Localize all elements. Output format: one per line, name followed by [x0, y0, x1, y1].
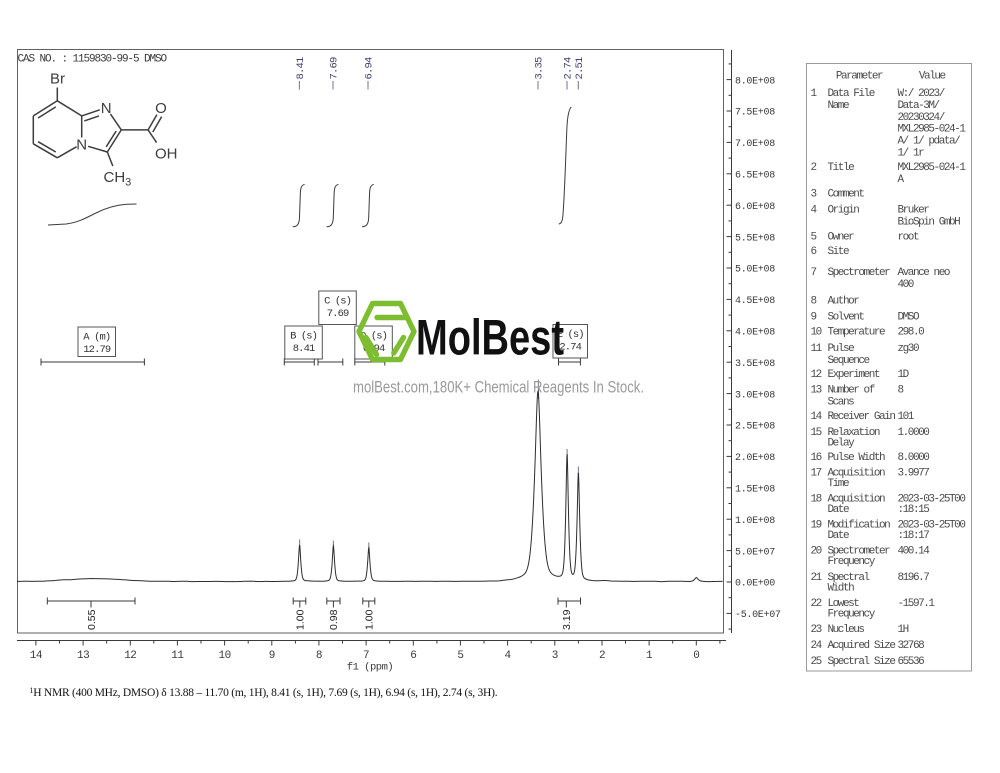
svg-text:3.5E+08: 3.5E+08 [735, 359, 775, 370]
svg-text::18:17: :18:17 [898, 530, 930, 542]
svg-text:MXL2985-024-1: MXL2985-024-1 [898, 162, 967, 174]
svg-text:Acquired Size: Acquired Size [828, 640, 896, 652]
svg-text:5.0E+07: 5.0E+07 [735, 547, 775, 558]
svg-text:zg30: zg30 [898, 343, 919, 355]
svg-text:BioSpin GmbH: BioSpin GmbH [898, 216, 961, 228]
svg-text:22: 22 [811, 598, 822, 610]
svg-text:A (m): A (m) [83, 332, 110, 344]
svg-text:8.0000: 8.0000 [898, 452, 930, 464]
svg-text:Comment: Comment [828, 189, 865, 201]
svg-text:OH: OH [155, 146, 178, 163]
svg-text:3.9977: 3.9977 [898, 467, 930, 479]
svg-text:7.0E+08: 7.0E+08 [735, 139, 775, 150]
svg-text:Avance neo: Avance neo [898, 267, 950, 279]
svg-text:4: 4 [811, 205, 818, 217]
svg-text:1D: 1D [898, 369, 910, 381]
svg-text:8: 8 [316, 650, 322, 662]
svg-text:Nucleus: Nucleus [828, 624, 865, 636]
svg-text:1.00: 1.00 [295, 609, 307, 630]
svg-text:9: 9 [811, 312, 817, 324]
svg-text:12.79: 12.79 [83, 344, 111, 356]
svg-text:4.5E+08: 4.5E+08 [735, 296, 775, 307]
svg-text:17: 17 [811, 467, 822, 479]
svg-text:3.19: 3.19 [561, 609, 573, 630]
svg-text:Solvent: Solvent [828, 312, 865, 324]
svg-text:18: 18 [811, 493, 822, 505]
svg-text:12: 12 [811, 369, 822, 381]
svg-text:16: 16 [811, 452, 822, 464]
svg-text:11: 11 [811, 343, 823, 355]
svg-text:11: 11 [171, 650, 184, 662]
svg-text:A: A [898, 174, 905, 186]
svg-text:10: 10 [218, 650, 230, 662]
svg-text:101: 101 [898, 411, 915, 423]
svg-text:8.41: 8.41 [295, 57, 307, 80]
svg-text:MXL2985-024-1: MXL2985-024-1 [898, 124, 967, 136]
svg-text:Pulse Width: Pulse Width [828, 452, 886, 464]
svg-text:N: N [76, 136, 87, 153]
svg-text:400.14: 400.14 [898, 545, 931, 557]
svg-text:8.0E+08: 8.0E+08 [735, 76, 775, 87]
svg-text:Width: Width [828, 583, 855, 595]
svg-text:5: 5 [457, 650, 463, 662]
svg-text:0: 0 [693, 650, 699, 662]
svg-text:Data File: Data File [828, 88, 875, 100]
svg-text:Title: Title [828, 162, 855, 174]
svg-text:1.5E+08: 1.5E+08 [735, 485, 775, 496]
svg-text:A/ 1/ pdata/: A/ 1/ pdata/ [898, 136, 961, 148]
svg-text:C (s): C (s) [324, 296, 351, 308]
svg-text:Sequence: Sequence [828, 355, 870, 367]
svg-text:2.0E+08: 2.0E+08 [735, 453, 775, 464]
svg-text:2.51: 2.51 [574, 57, 586, 80]
svg-text:7: 7 [811, 267, 817, 279]
svg-text:Receiver Gain: Receiver Gain [828, 411, 896, 423]
svg-text:5.0E+08: 5.0E+08 [735, 265, 775, 276]
svg-text:20230324/: 20230324/ [898, 112, 945, 124]
svg-text:Scans: Scans [828, 396, 855, 408]
svg-text:1H: 1H [898, 624, 909, 636]
svg-text:CAS NO. : 1159830-99-5 DMSO: CAS NO. : 1159830-99-5 DMSO [18, 54, 168, 66]
svg-text:Spectral Size: Spectral Size [828, 656, 896, 668]
svg-text:molBest.com,180K+ Chemical Rea: molBest.com,180K+ Chemical Reagents In S… [353, 379, 644, 397]
svg-text:Time: Time [828, 478, 849, 490]
svg-text:6: 6 [811, 246, 817, 258]
svg-text:1: 1 [646, 650, 653, 662]
svg-text:1.0000: 1.0000 [898, 427, 930, 439]
svg-text:1/ 1r: 1/ 1r [898, 148, 925, 160]
svg-text:0.55: 0.55 [86, 609, 98, 630]
svg-text:Value: Value [919, 71, 946, 83]
svg-text:1: 1 [811, 88, 818, 100]
svg-text:2: 2 [811, 162, 817, 174]
svg-text:10: 10 [811, 327, 822, 339]
svg-text:Pulse: Pulse [828, 343, 855, 355]
svg-text:Bruker: Bruker [898, 205, 930, 217]
svg-text:8196.7: 8196.7 [898, 572, 930, 584]
svg-text:1.00: 1.00 [364, 609, 376, 630]
svg-text:Parameter: Parameter [836, 71, 883, 83]
svg-text:Temperature: Temperature [828, 327, 886, 339]
svg-text:W:/ 2023/: W:/ 2023/ [898, 88, 945, 100]
svg-text:21: 21 [811, 572, 823, 584]
svg-text:Frequency: Frequency [828, 609, 876, 621]
svg-text:8: 8 [811, 296, 817, 308]
svg-text:Spectrometer: Spectrometer [828, 267, 891, 279]
svg-text:8.41: 8.41 [293, 343, 315, 355]
svg-text:4.0E+08: 4.0E+08 [735, 328, 775, 339]
svg-text:14: 14 [30, 650, 43, 662]
svg-text:Data-3M/: Data-3M/ [898, 100, 940, 112]
svg-text:f1 (ppm): f1 (ppm) [347, 662, 393, 674]
svg-text:1.0E+08: 1.0E+08 [735, 516, 775, 527]
svg-text:-1597.1: -1597.1 [898, 598, 936, 610]
svg-text:Br: Br [50, 71, 65, 88]
svg-text:9: 9 [269, 650, 275, 662]
svg-text:13: 13 [811, 385, 822, 397]
svg-text:Author: Author [828, 296, 860, 308]
svg-text:Number of: Number of [828, 385, 875, 397]
svg-text:6: 6 [410, 650, 416, 662]
svg-text:14: 14 [811, 411, 823, 423]
svg-text:root: root [898, 232, 919, 244]
svg-text:0.98: 0.98 [328, 609, 340, 630]
svg-text:400: 400 [898, 279, 914, 291]
svg-text:3.0E+08: 3.0E+08 [735, 390, 775, 401]
svg-text:0.0E+00: 0.0E+00 [735, 579, 775, 590]
svg-text:32768: 32768 [898, 640, 925, 652]
svg-text:24: 24 [811, 640, 823, 652]
svg-text:19: 19 [811, 519, 822, 531]
svg-text:MolBest: MolBest [416, 310, 564, 366]
svg-text:7.69: 7.69 [327, 308, 349, 320]
svg-text:8: 8 [898, 385, 904, 397]
svg-text:Owner: Owner [828, 232, 855, 244]
svg-text:6.0E+08: 6.0E+08 [735, 202, 775, 213]
svg-text:Date: Date [828, 504, 849, 516]
svg-text:23: 23 [811, 624, 822, 636]
svg-text:13: 13 [77, 650, 89, 662]
svg-text:-5.0E+07: -5.0E+07 [735, 610, 781, 621]
svg-text:3: 3 [552, 650, 558, 662]
svg-text:Site: Site [828, 246, 849, 258]
svg-text:7: 7 [363, 650, 369, 662]
svg-text:20: 20 [811, 545, 822, 557]
svg-text:2.74: 2.74 [563, 57, 575, 80]
svg-text:B (s): B (s) [290, 331, 317, 343]
svg-text:65536: 65536 [898, 656, 925, 668]
svg-text:3.35: 3.35 [534, 57, 546, 80]
svg-text:Name: Name [828, 100, 849, 112]
svg-text:CH3: CH3 [104, 169, 132, 189]
svg-text:Origin: Origin [828, 205, 860, 217]
svg-text:Experiment: Experiment [828, 369, 880, 381]
svg-text:7.5E+08: 7.5E+08 [735, 108, 775, 119]
svg-text:5: 5 [811, 232, 817, 244]
svg-text::18:15: :18:15 [898, 504, 930, 516]
svg-text:Delay: Delay [828, 437, 856, 449]
svg-text:4: 4 [505, 650, 512, 662]
svg-text:12: 12 [124, 650, 136, 662]
svg-text:15: 15 [811, 427, 822, 439]
svg-text:1H NMR (400 MHz, DMSO) δ 13.88: 1H NMR (400 MHz, DMSO) δ 13.88 – 11.70 (… [30, 686, 498, 699]
svg-text:25: 25 [811, 656, 822, 668]
svg-text:298.0: 298.0 [898, 327, 925, 339]
svg-text:Frequency: Frequency [828, 556, 876, 568]
svg-text:Date: Date [828, 530, 849, 542]
svg-text:N: N [101, 100, 112, 117]
svg-text:6.5E+08: 6.5E+08 [735, 171, 775, 182]
svg-text:DMSO: DMSO [898, 312, 920, 324]
svg-text:2: 2 [599, 650, 605, 662]
svg-text:2.5E+08: 2.5E+08 [735, 422, 775, 433]
svg-text:7.69: 7.69 [329, 57, 341, 80]
svg-text:3: 3 [811, 189, 817, 201]
svg-text:6.94: 6.94 [364, 57, 376, 80]
svg-text:5.5E+08: 5.5E+08 [735, 233, 775, 244]
svg-text:O: O [155, 100, 167, 117]
